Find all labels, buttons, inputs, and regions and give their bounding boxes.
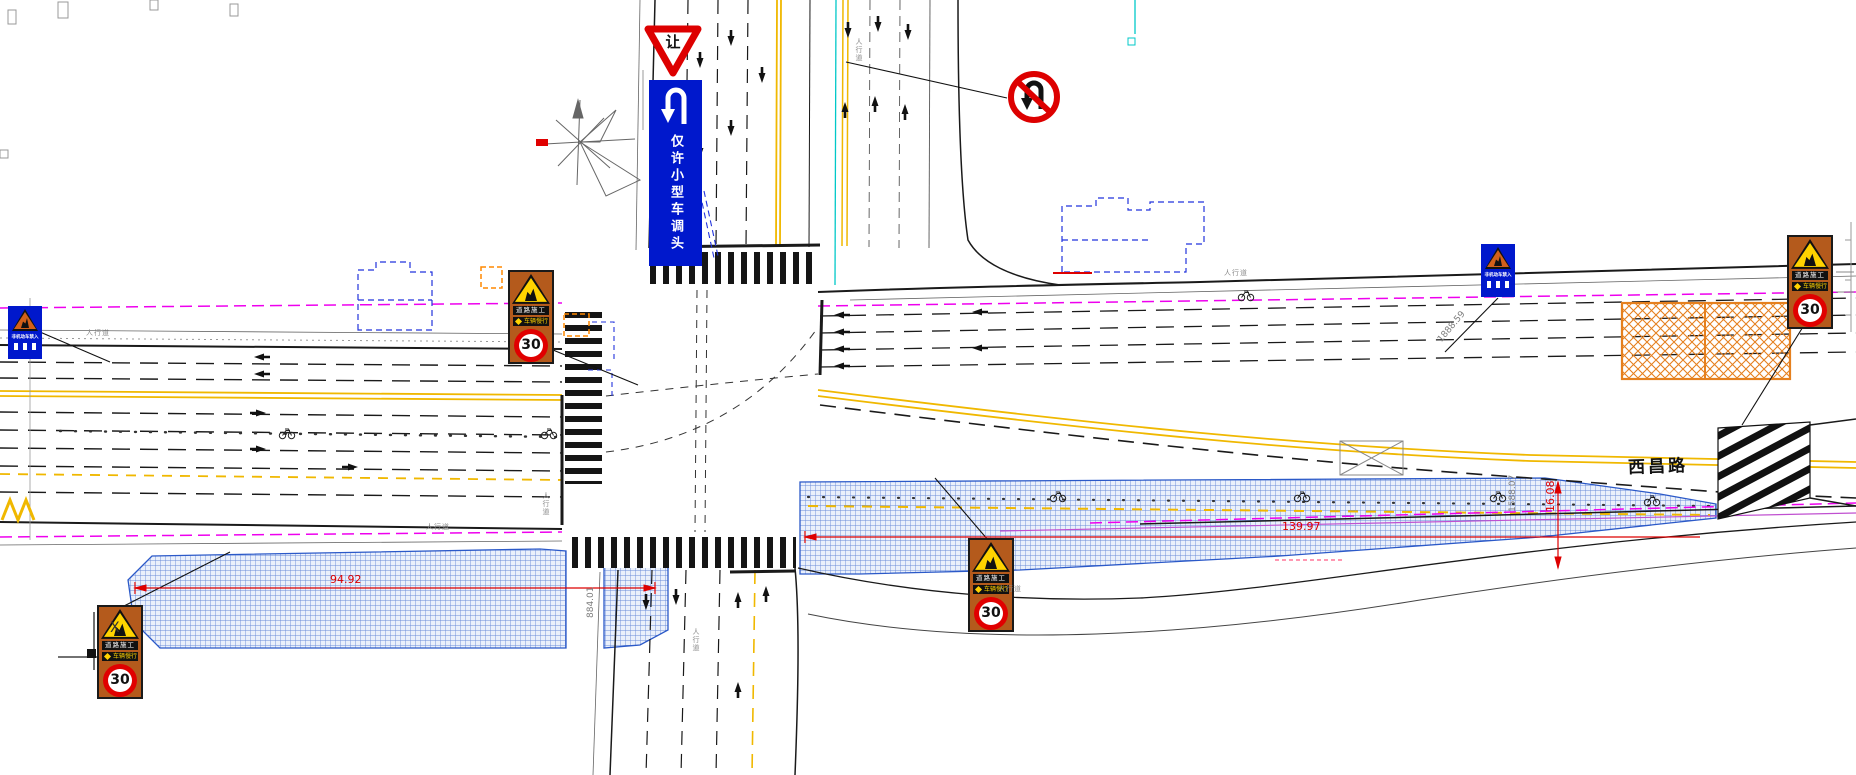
construction-traffic-plan: 让 仅许小型车调头 非机动车禁入 非机动车禁入 道路施工 车辆慢行 30 道路施… (0, 0, 1856, 775)
road-name-label: 西昌路 (1628, 451, 1689, 478)
roadwork-sign-b: 道路施工 车辆慢行 30 (97, 605, 143, 699)
sidewalk-label: 人行道 (426, 522, 450, 532)
compass-icon (536, 100, 640, 196)
yield-sign: 让 (644, 24, 702, 78)
sidewalk-label: 人行道 (86, 328, 110, 338)
roadwork-subtitle: 车辆慢行 (524, 317, 548, 326)
pedestrian-icons (1487, 281, 1509, 288)
station-label-east: 1588.07 (1508, 475, 1518, 512)
plan-drawing (0, 0, 1856, 775)
diamond-icon (104, 653, 111, 660)
intersection-guides (606, 290, 818, 532)
construction-notice-sign-west: 非机动车禁入 (8, 306, 42, 359)
pedestrian-icons (14, 343, 36, 350)
roadwork-sign-d: 道路施工 车辆慢行 30 (1787, 235, 1833, 329)
west-crosswalk (565, 308, 602, 484)
diamond-icon (1794, 283, 1801, 290)
small-vehicle-uturn-sign: 仅许小型车调头 (649, 80, 702, 266)
diamond-icon (515, 318, 522, 325)
speed-limit-30-sign: 30 (1793, 294, 1827, 327)
sidewalk-label: 人行道 (854, 38, 864, 62)
speed-limit-30-sign: 30 (514, 329, 548, 362)
worker-warning-icon (12, 309, 38, 331)
worker-warning-icon (1791, 239, 1829, 269)
dimension-east-width: 16.08 (1544, 481, 1557, 513)
roadwork-title: 道路施工 (102, 641, 138, 650)
dimension-east-length: 139.97 (1282, 520, 1321, 533)
notice-text: 非机动车禁入 (1485, 272, 1512, 278)
station-label-west: 884.01 (586, 587, 596, 619)
axis-x-label: X (110, 620, 120, 636)
roadwork-title: 道路施工 (513, 306, 549, 315)
sidewalk-label: 人行道 (691, 628, 701, 652)
roadwork-subtitle: 车辆慢行 (1803, 282, 1827, 291)
sidewalk-label: 人行道 (541, 492, 551, 516)
worker-warning-icon (101, 609, 139, 639)
worker-warning-icon (512, 274, 550, 304)
sidewalk-label: 人行道 (998, 584, 1022, 594)
roadwork-title: 道路施工 (1792, 271, 1828, 280)
speed-limit-30-sign: 30 (103, 664, 137, 697)
work-area-hatch-box (1622, 303, 1790, 379)
notice-text: 非机动车禁入 (12, 334, 39, 340)
speed-limit-30-sign: 30 (974, 597, 1008, 630)
south-crosswalk (568, 537, 796, 568)
west-road (0, 298, 562, 545)
roadwork-sign-a: 道路施工 车辆慢行 30 (508, 270, 554, 364)
roadwork-subtitle: 车辆慢行 (113, 652, 137, 661)
construction-notice-sign-east: 非机动车禁入 (1481, 244, 1515, 297)
roadwork-title: 道路施工 (973, 574, 1009, 583)
roadwork-subtitle-bar: 车辆慢行 (1792, 282, 1828, 291)
diamond-icon (975, 586, 982, 593)
worker-warning-icon (972, 542, 1010, 572)
sidewalk-label: 人行道 (1224, 268, 1248, 278)
east-road (798, 222, 1856, 635)
no-uturn-sign (1005, 69, 1063, 125)
yield-text: 让 (644, 31, 702, 52)
u-turn-arrow-icon (654, 80, 698, 130)
roadwork-subtitle-bar: 车辆慢行 (513, 317, 549, 326)
uturn-permit-text: 仅许小型车调头 (669, 134, 682, 253)
dimension-west-length: 94.92 (330, 573, 362, 586)
worker-warning-icon (1485, 247, 1511, 269)
roadwork-subtitle-bar: 车辆慢行 (102, 652, 138, 661)
no-u-turn-icon (1005, 69, 1063, 125)
